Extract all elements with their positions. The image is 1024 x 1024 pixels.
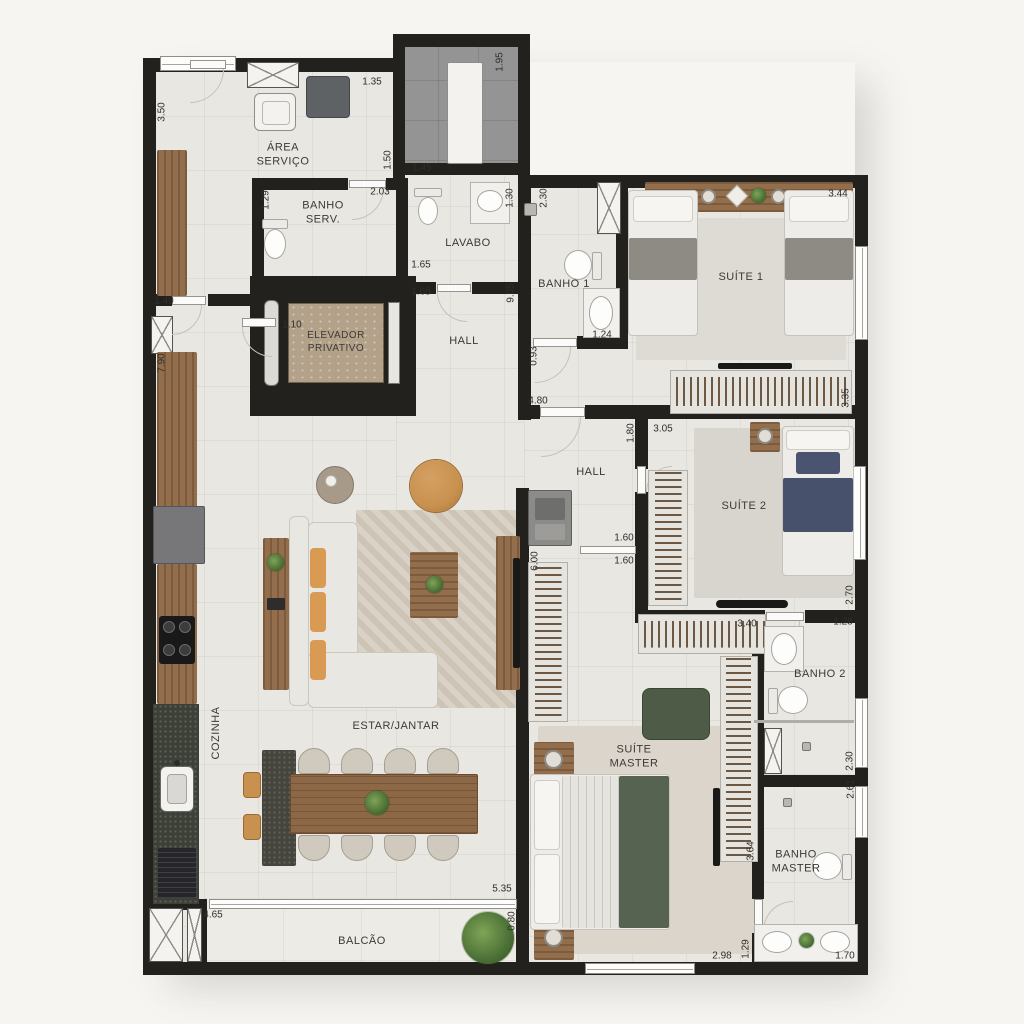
banho1-toilet (564, 250, 592, 280)
lavabo-toilet (418, 197, 438, 225)
wall-hall2-suite2-a (635, 419, 648, 469)
suite1-plant (751, 188, 766, 203)
sofa-chaise (308, 652, 438, 708)
master-tv (713, 788, 720, 866)
balcony-sliding-door (209, 899, 517, 909)
closet-corridor-left (528, 562, 568, 722)
suite2-lamp (757, 428, 773, 444)
corridor-cabinet-bottom (535, 524, 565, 540)
suite1-bed-right-pillow (789, 196, 849, 222)
sofa-cushion-3 (310, 640, 326, 680)
window-banho2 (855, 698, 868, 768)
label-hall-1: HALL (449, 334, 479, 348)
tech-cabinet (447, 62, 483, 164)
suite1-bed-right-blanket (785, 238, 853, 280)
dining-centerpiece (365, 791, 389, 815)
washer-drum (262, 101, 290, 125)
suite2-closet (648, 470, 688, 606)
fridge (153, 506, 205, 564)
suite2-blanket-navy (783, 478, 853, 532)
elevator-doors (388, 302, 400, 384)
label-suite-master: SUÍTE MASTER (610, 743, 659, 772)
label-area-servico: ÁREA SERVIÇO (257, 141, 310, 170)
dining-chair-4 (427, 748, 459, 774)
banho2-door (766, 612, 804, 621)
wall-tech-top (393, 34, 530, 47)
burner-3 (163, 644, 175, 656)
wall-suite2-bottom-b (805, 610, 868, 623)
label-cozinha: COZINHA (209, 707, 223, 760)
master-pillow-b (534, 854, 560, 924)
label-banho-master: BANHO MASTER (772, 848, 821, 877)
duct-balcony-a (149, 908, 183, 962)
corridor-cabinet-top (535, 498, 565, 520)
suite2-door (637, 466, 646, 494)
label-banho-serv: BANHO SERV. (302, 199, 344, 228)
side-table-decor (325, 475, 337, 487)
console-plant (267, 554, 284, 571)
pouf (410, 460, 462, 512)
lavabo-toilet-tank (414, 188, 442, 197)
closet-corridor-top (638, 614, 766, 654)
wall-tech-left (393, 34, 405, 180)
banho2-shower-head (802, 742, 811, 751)
living-tv (513, 558, 520, 668)
floor-plan: ÁREA SERVIÇO BANHO SERV. LAVABO ELEVADOR… (0, 0, 1024, 1024)
balcony-plant (462, 912, 514, 964)
closet-corridor-right (720, 656, 758, 862)
burner-1 (163, 621, 175, 633)
suite2-pillow-navy (796, 452, 840, 474)
duct-top (247, 62, 299, 88)
suite1-bed-left-blanket (629, 238, 697, 280)
wall-tech-bottom (398, 163, 520, 175)
kitchen-grill (158, 848, 196, 898)
duct-banho1 (597, 182, 621, 234)
wall-banhoserv-top-a (252, 178, 348, 190)
master-blanket-green (619, 776, 669, 928)
kitchen-faucet (174, 760, 180, 766)
duct-banho2 (764, 728, 782, 774)
wall-suite1-bottom-a (518, 405, 540, 419)
banho1-toilet-tank (592, 252, 602, 280)
banho2-toilet-tank (768, 688, 778, 714)
wall-banhoserv-lavabo-divider (396, 178, 408, 290)
banhoserv-toilet-tank (262, 219, 288, 229)
banho-master-sink-right (820, 931, 850, 953)
entry-door (190, 60, 226, 69)
burner-4 (179, 644, 191, 656)
laundry-tank (306, 76, 350, 118)
banho1-shower-head (524, 203, 537, 216)
dining-chair-1 (298, 748, 330, 774)
wall-hall1-right (518, 180, 531, 420)
master-duvet (562, 776, 620, 928)
console-books (267, 598, 285, 610)
lavabo-sink (477, 190, 503, 212)
burner-2 (179, 621, 191, 633)
duct-kitchen (151, 316, 173, 354)
master-ottoman (642, 688, 710, 740)
banho-master-plant (799, 933, 814, 948)
kitchen-counter-top (157, 352, 197, 508)
banho2-sink (771, 633, 797, 665)
dining-chair-3 (384, 748, 416, 774)
label-suite-1: SUÍTE 1 (718, 270, 763, 284)
label-suite-2: SUÍTE 2 (721, 499, 766, 513)
servico-counter (157, 150, 187, 296)
banho1-sink (589, 296, 613, 330)
wall-banho2-bottom (752, 775, 868, 787)
label-lavabo: LAVABO (445, 236, 490, 250)
hall2-door (540, 407, 585, 417)
banho-master-sink-left (762, 931, 792, 953)
suite1-sconce-left (701, 189, 716, 204)
master-pillow-a (534, 780, 560, 850)
label-estar-jantar: ESTAR/JANTAR (353, 719, 440, 733)
master-lamp-bottom (544, 928, 563, 947)
suite2-tv (716, 600, 788, 608)
duct-balcony-b (187, 908, 202, 962)
banho2-toilet (778, 686, 808, 714)
dining-chair-2 (341, 748, 373, 774)
hall1-door (242, 318, 276, 327)
window-suite2 (853, 466, 866, 560)
stool-1 (243, 772, 261, 798)
servico-door (172, 296, 206, 305)
window-suite1 (855, 246, 868, 340)
closet-corridor-door (580, 546, 636, 554)
suite1-tv (718, 363, 792, 369)
suite2-bed-head (786, 430, 850, 450)
sofa-cushion-1 (310, 548, 326, 588)
kitchen-sink-basin (167, 774, 187, 804)
wall-outer-bottom (143, 962, 868, 975)
window-banho-master (855, 786, 868, 838)
banho-master-shower-head (783, 798, 792, 807)
label-balcao: BALCÃO (338, 934, 386, 948)
banho2-shower-glass (754, 720, 854, 723)
suite1-wardrobe (670, 370, 852, 414)
label-hall-2: HALL (576, 465, 606, 479)
banho-master-toilet-tank (842, 854, 852, 880)
suite1-bed-left-pillow (633, 196, 693, 222)
banho1-door (533, 338, 577, 347)
stool-2 (243, 814, 261, 840)
wall-tech-right (518, 34, 530, 180)
sofa-cushion-2 (310, 592, 326, 632)
master-lamp-top (544, 750, 563, 769)
sofa-back (289, 516, 309, 706)
window-master-bottom (585, 963, 695, 974)
wall-banhoserv-left (252, 178, 264, 290)
label-banho-1: BANHO 1 (538, 277, 590, 291)
lavabo-door (437, 284, 471, 292)
coffee-table-plant (426, 576, 443, 593)
label-elevador: ELEVADOR PRIVATIVO (307, 329, 365, 355)
label-banho-2: BANHO 2 (794, 667, 846, 681)
banhoserv-toilet (264, 229, 286, 259)
wall-hall2-suite2-b (635, 492, 648, 610)
banhoserv-door (349, 180, 386, 188)
